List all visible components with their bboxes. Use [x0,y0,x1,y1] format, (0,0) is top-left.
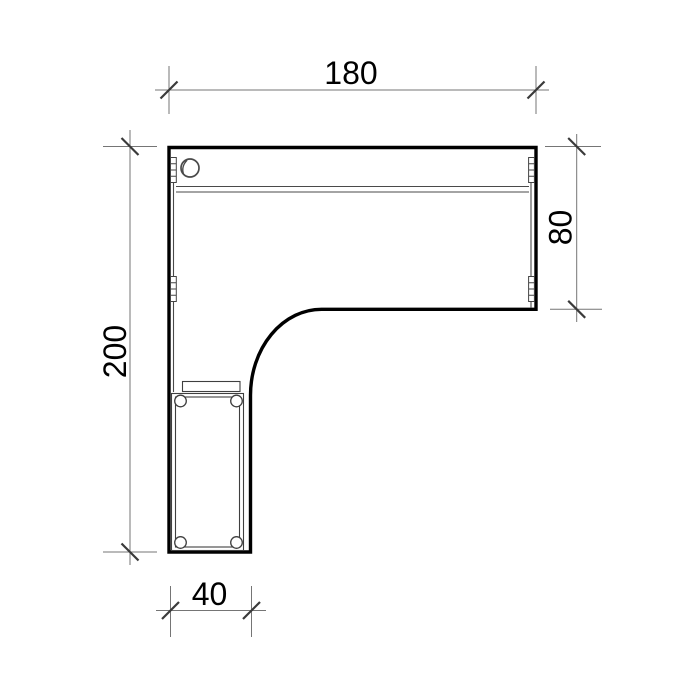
dimension-label-bottom: 40 [192,576,228,612]
caster-wheel-back-left [175,537,187,549]
bracket-mid-left [171,277,177,302]
dimension-label-top: 180 [324,55,377,91]
technical-drawing: 180 80 200 [0,0,700,700]
dimension-label-right: 80 [543,210,579,246]
drawing-canvas: 180 80 200 [0,0,700,700]
bracket-top-right [529,158,535,183]
dimension-label-left: 200 [97,325,133,378]
bracket-top-left [171,158,177,183]
dimension-bottom: 40 [156,576,266,637]
bracket-mid-right [529,277,535,302]
dimension-left: 200 [97,130,157,565]
dimension-right: 80 [543,134,603,322]
desk-outline [169,148,536,553]
caster-wheel-front-right [231,395,243,407]
caster-wheel-front-left [175,395,187,407]
dimension-top: 180 [155,55,549,114]
caster-wheel-back-right [231,537,243,549]
